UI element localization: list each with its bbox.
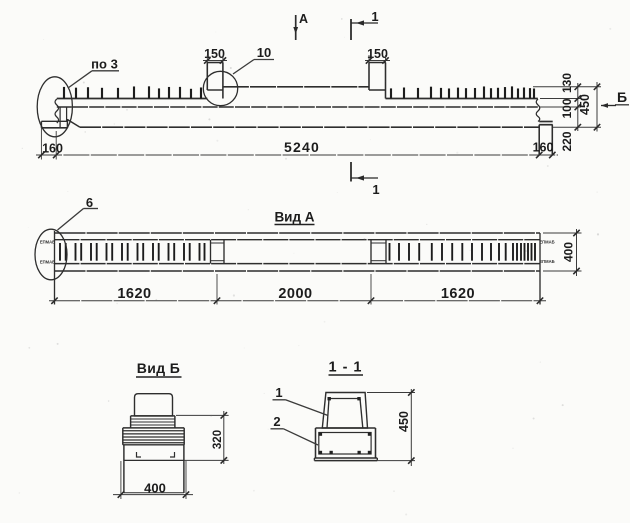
svg-text:6: 6 bbox=[86, 195, 93, 210]
svg-text:по 3: по 3 bbox=[91, 57, 118, 72]
svg-text:100: 100 bbox=[560, 98, 574, 118]
svg-text:220: 220 bbox=[560, 131, 574, 151]
svg-text:1: 1 bbox=[275, 385, 282, 400]
svg-text:400: 400 bbox=[562, 242, 576, 262]
svg-text:ЕПМАБ: ЕПМАБ bbox=[40, 240, 55, 245]
svg-text:130: 130 bbox=[560, 73, 574, 93]
svg-text:1620: 1620 bbox=[117, 286, 151, 302]
svg-text:450: 450 bbox=[578, 94, 592, 115]
svg-text:2000: 2000 bbox=[278, 286, 312, 302]
svg-text:2: 2 bbox=[273, 414, 280, 429]
svg-text:Вид А: Вид А bbox=[274, 210, 314, 225]
svg-text:1: 1 bbox=[371, 9, 378, 24]
svg-text:1: 1 bbox=[372, 182, 379, 197]
svg-text:А: А bbox=[299, 12, 308, 26]
svg-text:ЕПМАБ: ЕПМАБ bbox=[539, 259, 554, 264]
svg-text:Вид Б: Вид Б bbox=[137, 360, 181, 376]
svg-text:160: 160 bbox=[533, 141, 554, 155]
svg-text:10: 10 bbox=[257, 45, 271, 60]
svg-text:5240: 5240 bbox=[284, 139, 320, 155]
svg-text:1 - 1: 1 - 1 bbox=[328, 360, 362, 376]
svg-text:160: 160 bbox=[42, 142, 63, 156]
svg-text:ЕПМАБ: ЕПМАБ bbox=[40, 260, 55, 265]
svg-text:Б: Б bbox=[617, 89, 627, 105]
svg-text:ЕПМАБ: ЕПМАБ bbox=[539, 240, 554, 245]
svg-text:320: 320 bbox=[212, 430, 224, 449]
svg-text:400: 400 bbox=[144, 481, 166, 496]
svg-text:450: 450 bbox=[397, 411, 411, 432]
svg-text:1620: 1620 bbox=[441, 286, 475, 302]
